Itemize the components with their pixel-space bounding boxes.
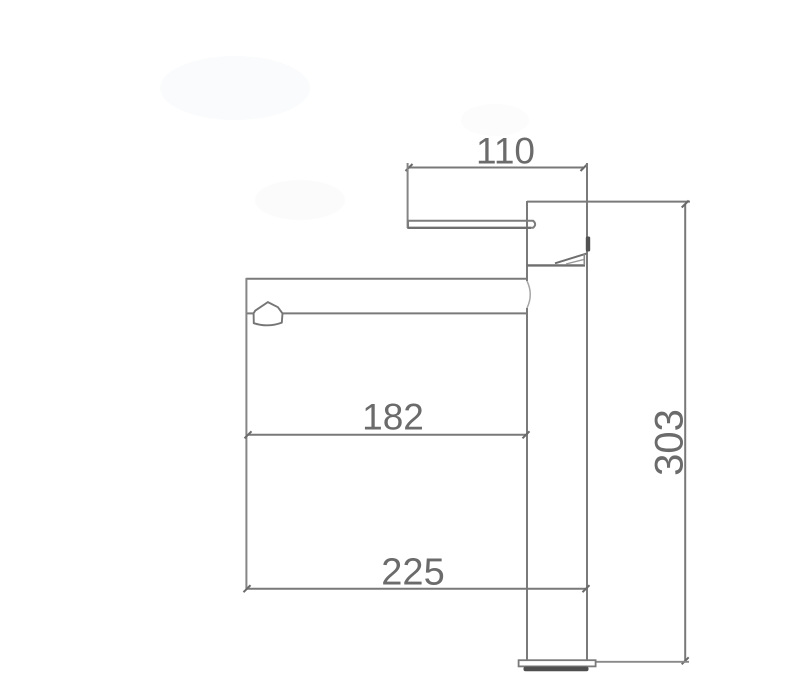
svg-text:225: 225 <box>381 552 444 594</box>
svg-text:110: 110 <box>476 131 535 172</box>
svg-text:182: 182 <box>362 397 424 438</box>
